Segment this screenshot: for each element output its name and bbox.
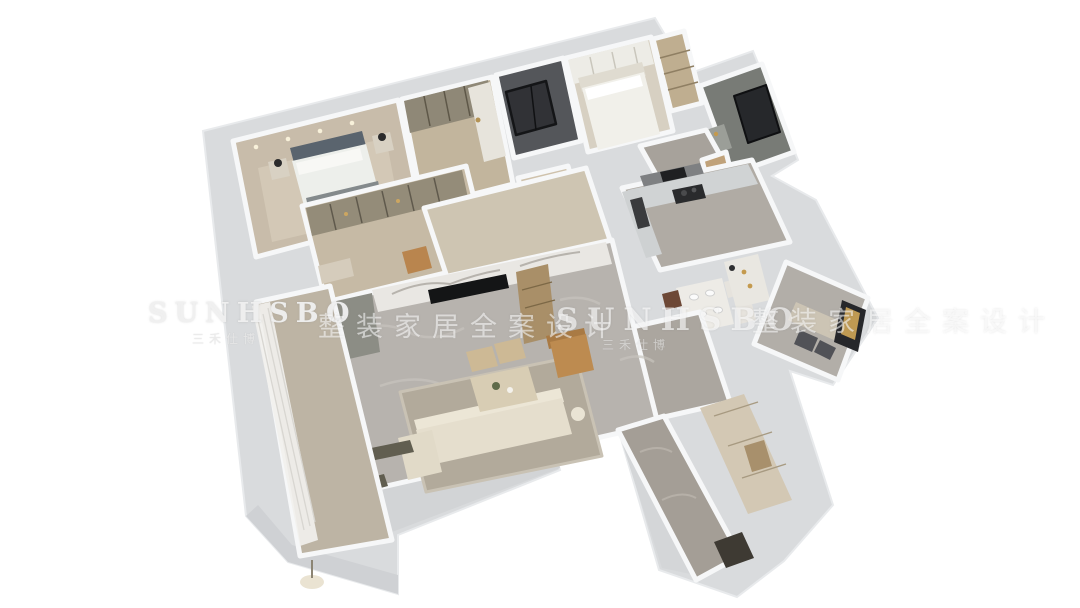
gold-decor-1 bbox=[742, 270, 747, 275]
coffee-machine bbox=[729, 265, 735, 271]
table-plant bbox=[492, 382, 500, 390]
pan bbox=[681, 190, 687, 196]
wardrobe-gold-light-2 bbox=[396, 199, 400, 203]
screenshot-root: SUNHSBO 三禾仕博 整装家居全案设计 SUNHSBO 三禾仕博 整装家居全… bbox=[0, 0, 1080, 608]
gold-decor-2 bbox=[748, 284, 753, 289]
bathroom-gold-fixture bbox=[714, 132, 718, 136]
table-vase bbox=[507, 387, 513, 393]
accent-armchair bbox=[550, 334, 594, 378]
side-table-lamp bbox=[571, 407, 585, 421]
table-lamp-right bbox=[378, 133, 386, 141]
closet-gold-accent bbox=[476, 118, 481, 123]
pot bbox=[692, 188, 697, 193]
wardrobe-gold-light-1 bbox=[344, 212, 348, 216]
table-lamp-left bbox=[274, 159, 282, 167]
floorplan-render bbox=[0, 0, 1080, 608]
